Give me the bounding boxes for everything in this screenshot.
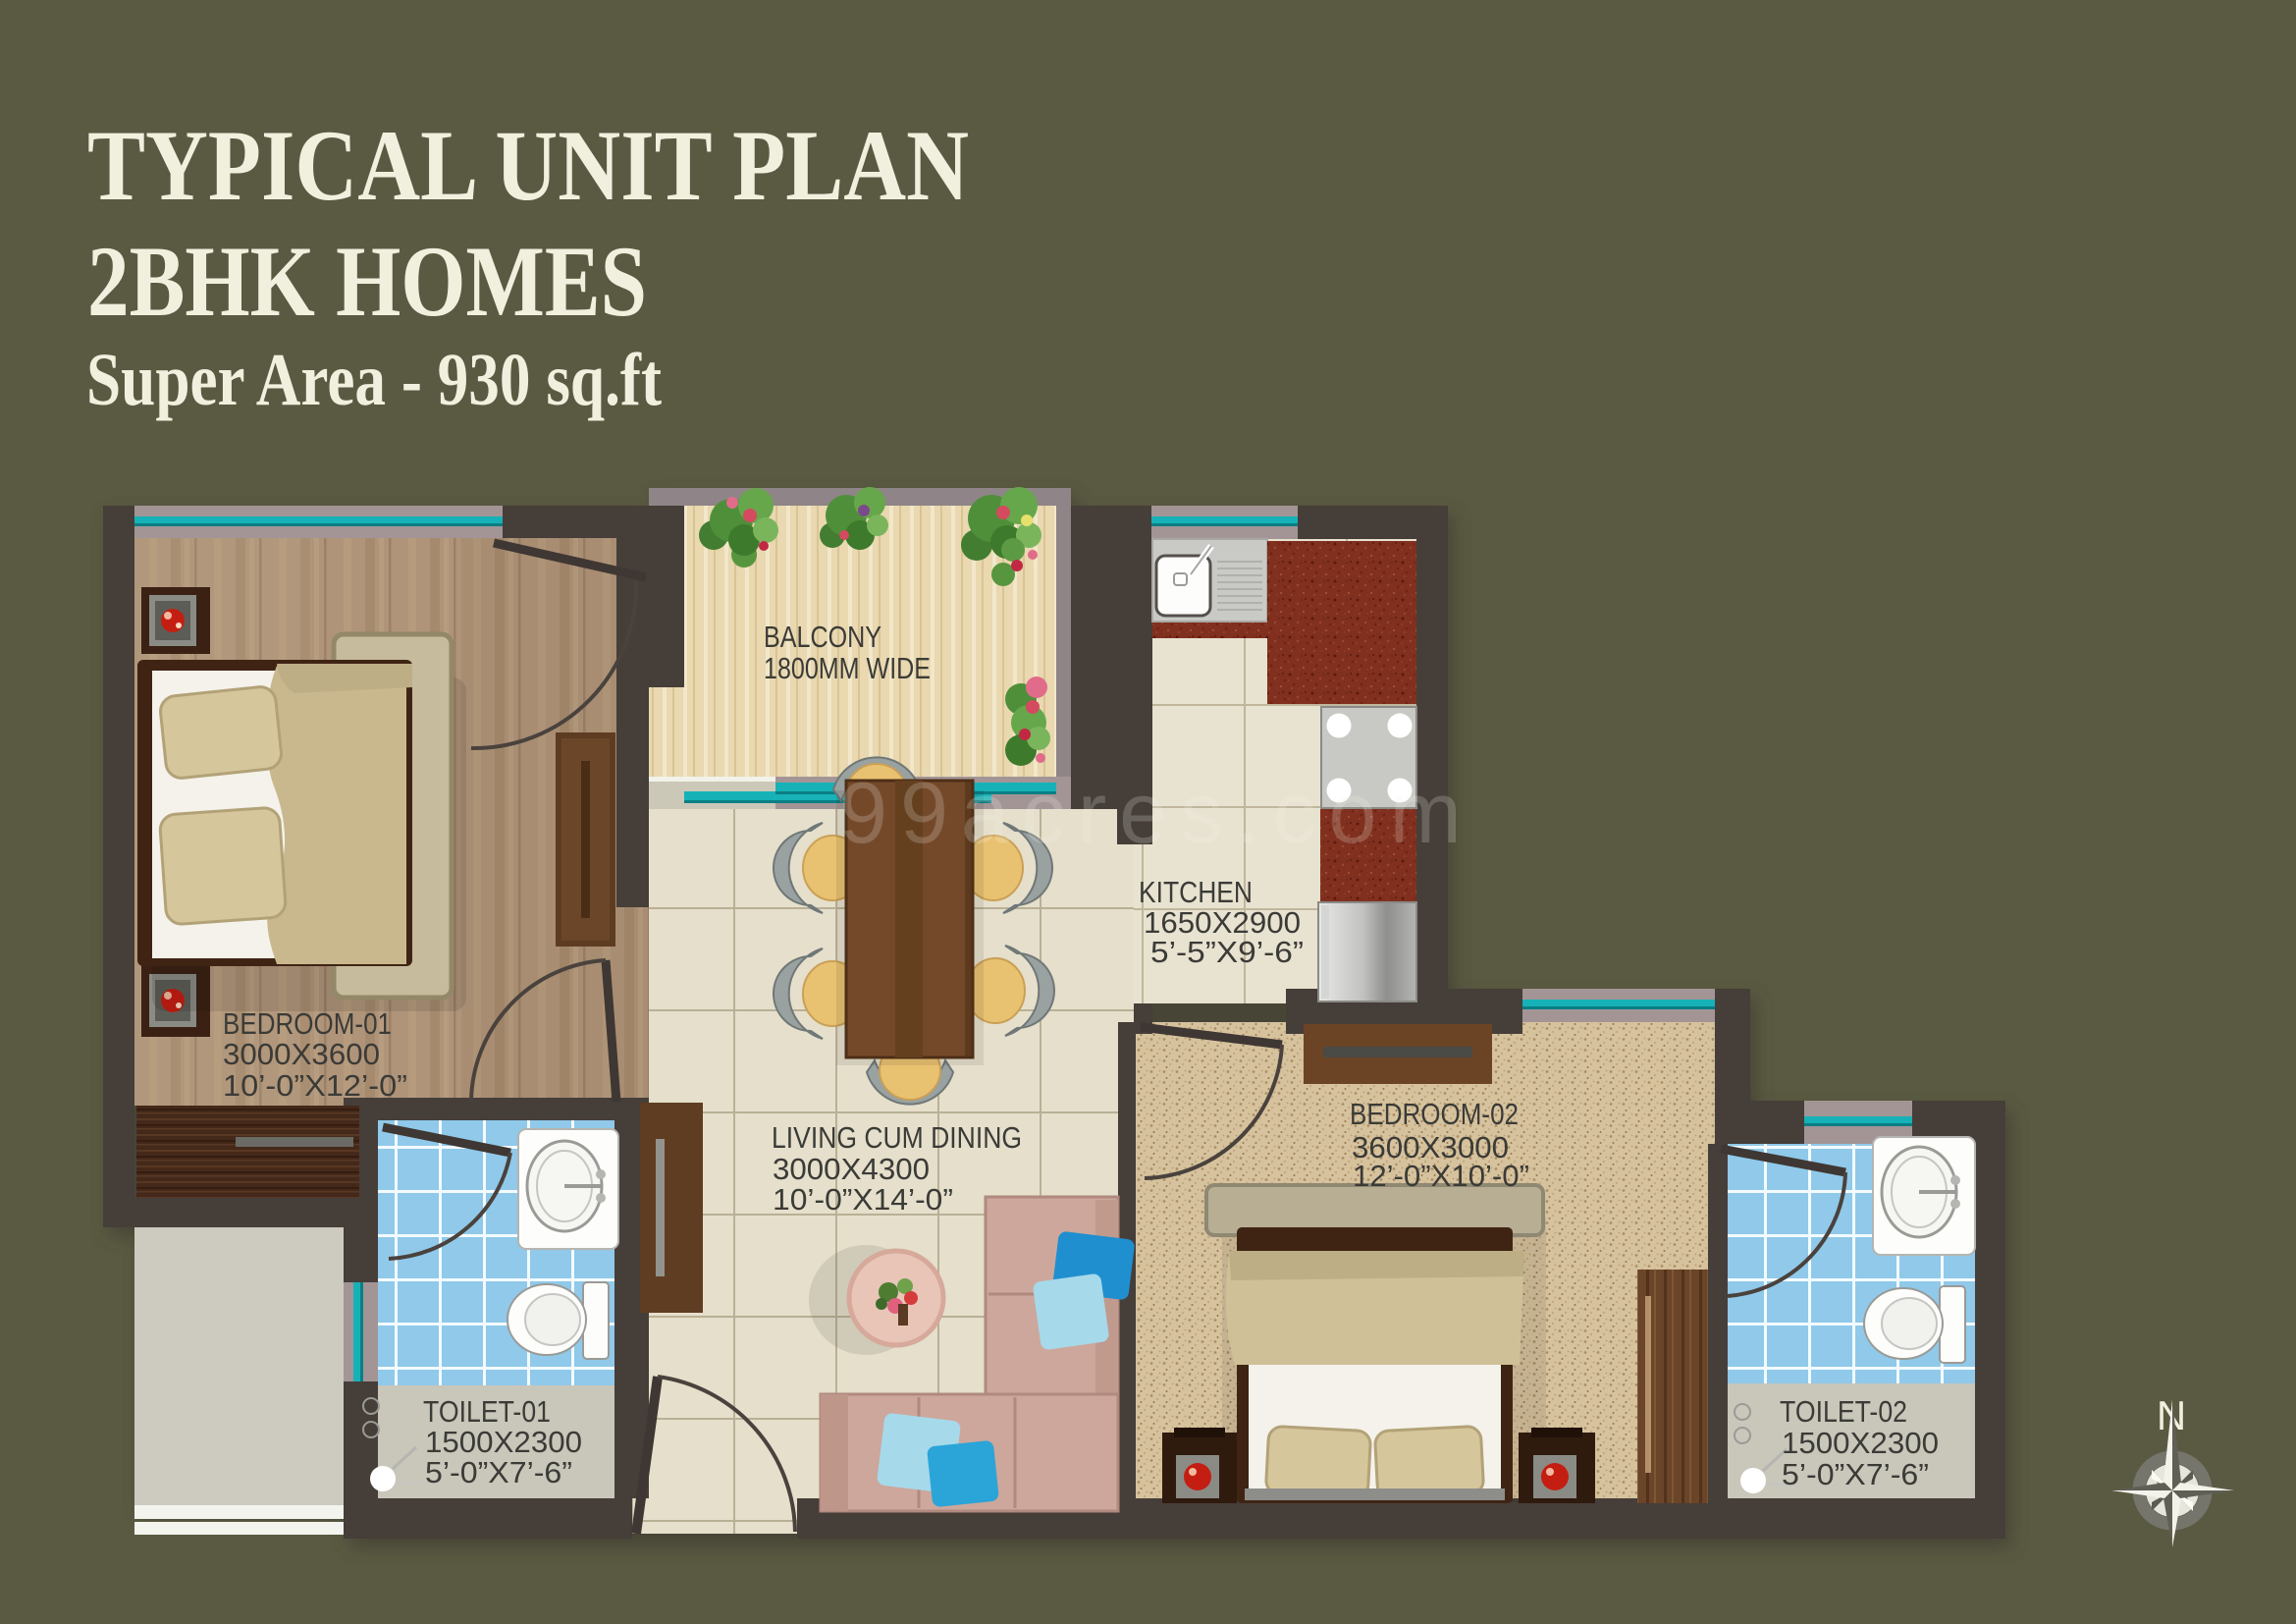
svg-text:5’-0”X7’-6”: 5’-0”X7’-6” bbox=[1782, 1457, 1929, 1491]
svg-text:5’-5”X9’-6”: 5’-5”X9’-6” bbox=[1150, 935, 1304, 969]
svg-text:5’-0”X7’-6”: 5’-0”X7’-6” bbox=[425, 1455, 572, 1489]
svg-text:10’-0”X14’-0”: 10’-0”X14’-0” bbox=[773, 1182, 953, 1217]
svg-text:10’-0”X12’-0”: 10’-0”X12’-0” bbox=[223, 1068, 407, 1103]
svg-text:Super Area - 930 sq.ft: Super Area - 930 sq.ft bbox=[86, 339, 662, 421]
svg-text:1500X2300: 1500X2300 bbox=[1782, 1426, 1939, 1460]
svg-text:1500X2300: 1500X2300 bbox=[425, 1425, 582, 1459]
svg-text:TOILET-02: TOILET-02 bbox=[1780, 1394, 1907, 1429]
svg-text:TOILET-01: TOILET-01 bbox=[423, 1394, 551, 1429]
svg-text:12’-0”X10’-0”: 12’-0”X10’-0” bbox=[1353, 1159, 1529, 1193]
svg-text:BEDROOM-02: BEDROOM-02 bbox=[1350, 1097, 1519, 1131]
svg-text:1800MM WIDE: 1800MM WIDE bbox=[764, 651, 931, 685]
svg-text:KITCHEN: KITCHEN bbox=[1139, 875, 1253, 909]
svg-text:3000X3600: 3000X3600 bbox=[223, 1037, 380, 1071]
svg-text:BEDROOM-01: BEDROOM-01 bbox=[223, 1006, 392, 1041]
svg-text:2BHK HOMES: 2BHK HOMES bbox=[87, 226, 647, 338]
svg-text:LIVING CUM DINING: LIVING CUM DINING bbox=[772, 1120, 1022, 1155]
svg-text:TYPICAL UNIT PLAN: TYPICAL UNIT PLAN bbox=[87, 110, 969, 222]
svg-text:3000X4300: 3000X4300 bbox=[773, 1152, 930, 1186]
svg-text:99acres.com: 99acres.com bbox=[839, 764, 1474, 861]
svg-text:BALCONY: BALCONY bbox=[764, 620, 881, 654]
